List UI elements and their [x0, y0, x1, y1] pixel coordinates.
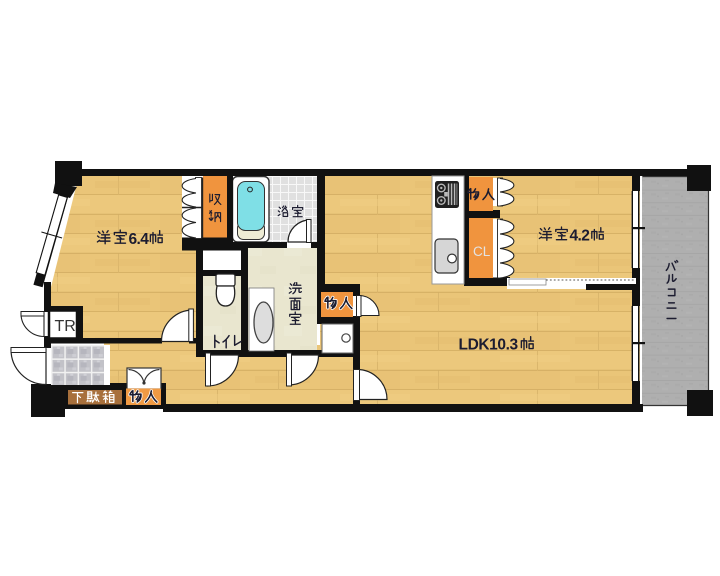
svg-text:CL: CL — [473, 244, 491, 259]
svg-text:6.4: 6.4 — [129, 231, 150, 248]
svg-text:TR: TR — [55, 318, 76, 335]
svg-text:4.2: 4.2 — [570, 228, 590, 245]
svg-text:LDK10.3: LDK10.3 — [459, 337, 519, 354]
